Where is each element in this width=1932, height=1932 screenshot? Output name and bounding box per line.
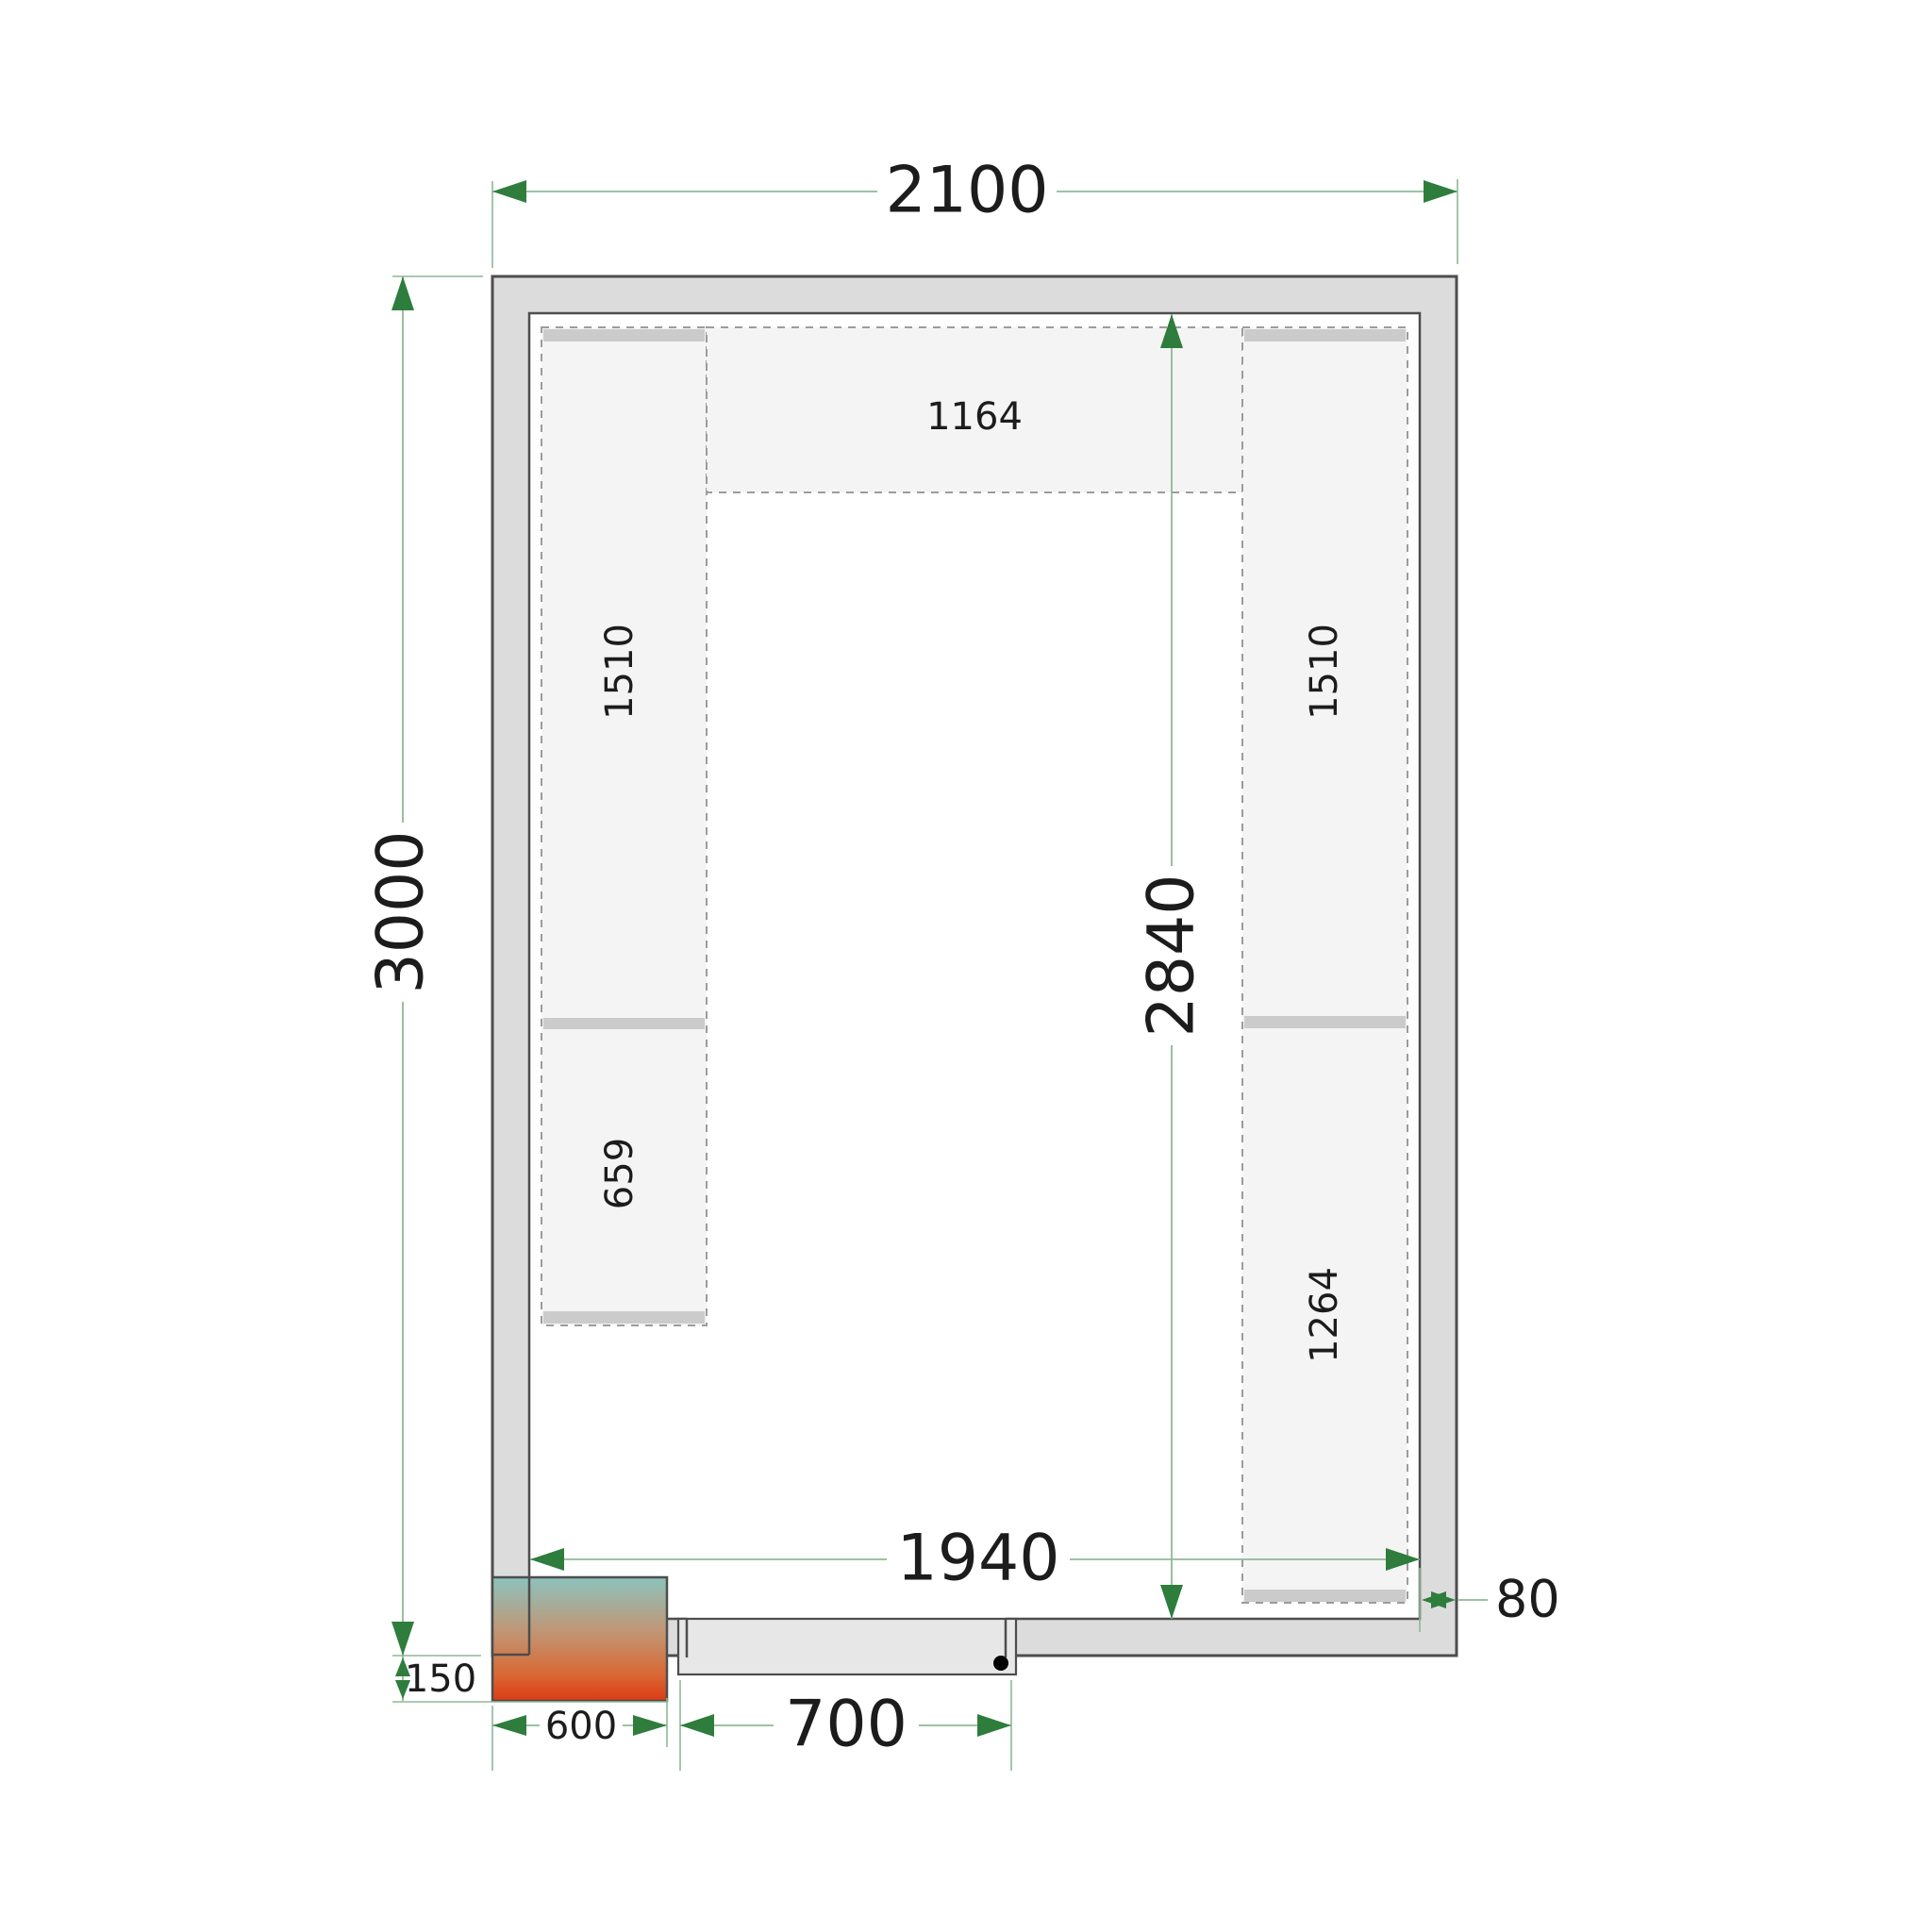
shelf-band-left-top [543, 329, 705, 341]
floor-plan-drawing: 1164 1510 659 1510 1264 2100 3000 2840 [0, 0, 1932, 1932]
shelf-band-right-top [1244, 329, 1406, 341]
floor-plan-canvas: 1164 1510 659 1510 1264 2100 3000 2840 [0, 0, 1932, 1932]
dim-label-unit-width: 600 [545, 1705, 617, 1748]
dim-label-wall-thickness: 80 [1495, 1570, 1560, 1629]
dim-label-inner-height: 2840 [1135, 874, 1209, 1037]
shelf-label-left-upper: 1510 [598, 624, 641, 720]
dim-label-door-width: 700 [785, 1688, 908, 1762]
arrow-left-icon [492, 1715, 526, 1736]
arrow-right-icon [977, 1714, 1011, 1737]
dim-label-outer-width: 2100 [885, 154, 1048, 228]
shelf-label-top-center: 1164 [926, 395, 1023, 439]
dimension-outer-height: 3000 [364, 276, 484, 1656]
door-leaf [678, 1619, 1016, 1674]
cooling-unit-body [492, 1577, 667, 1701]
cooling-unit [492, 1577, 667, 1701]
shelf-right-column [1242, 327, 1407, 1603]
arrow-right-icon [633, 1715, 667, 1736]
shelf-band-right-divider [1244, 1016, 1406, 1028]
shelf-label-left-lower: 659 [598, 1138, 641, 1209]
arrow-left-icon [492, 180, 526, 203]
shelf-band-left-divider [543, 1018, 705, 1029]
arrow-up-icon [391, 276, 414, 310]
dimension-unit-width: 600 [492, 1698, 667, 1771]
dim-label-outer-height: 3000 [364, 830, 439, 993]
door [678, 1619, 1016, 1674]
arrow-right-icon [1424, 180, 1457, 203]
arrow-down-icon [391, 1622, 414, 1656]
dimension-door-width: 700 [680, 1680, 1011, 1771]
shelf-band-left-bottom [543, 1311, 705, 1324]
dim-label-unit-protrusion: 150 [405, 1657, 476, 1701]
shelf-band-right-bottom [1244, 1590, 1406, 1602]
shelf-label-right-upper: 1510 [1303, 624, 1346, 720]
dim-label-inner-width: 1940 [896, 1522, 1059, 1596]
dimension-outer-width: 2100 [492, 154, 1457, 269]
shelf-label-right-lower: 1264 [1303, 1267, 1346, 1363]
arrow-left-icon [680, 1714, 714, 1737]
door-hinge-dot [993, 1656, 1008, 1671]
